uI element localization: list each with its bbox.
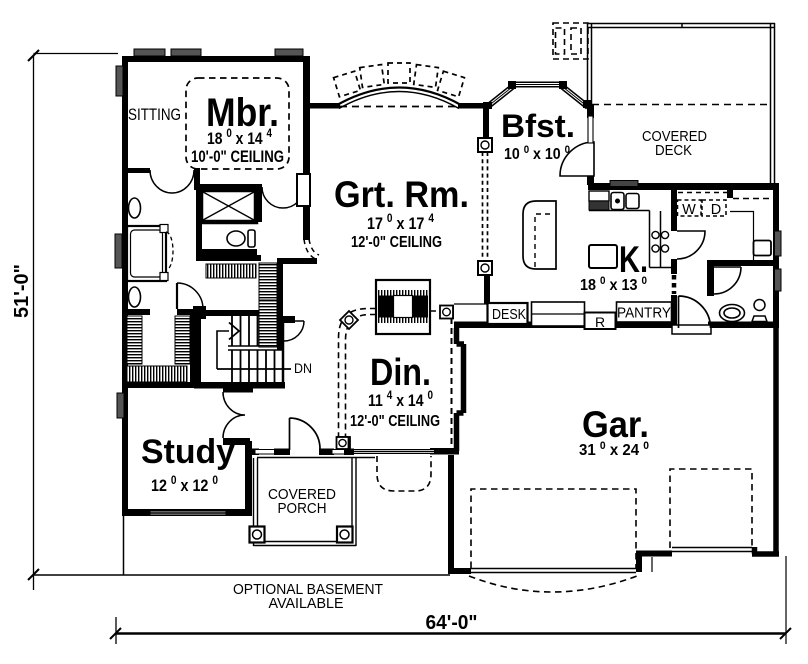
svg-text:31 0 x 24 0: 31 0 x 24 0 — [579, 440, 649, 459]
svg-text:51'-0": 51'-0" — [11, 264, 33, 318]
svg-text:DESK: DESK — [492, 307, 526, 323]
svg-text:D: D — [711, 202, 721, 218]
svg-text:DN: DN — [294, 360, 312, 376]
svg-text:12'-0" CEILING: 12'-0" CEILING — [350, 413, 440, 430]
svg-text:PANTRY: PANTRY — [617, 305, 671, 322]
svg-text:Gar.: Gar. — [582, 404, 649, 445]
svg-text:12'-0" CEILING: 12'-0" CEILING — [351, 234, 442, 251]
svg-text:R: R — [595, 314, 605, 330]
svg-text:SITTING: SITTING — [128, 105, 181, 124]
svg-text:Bfst.: Bfst. — [501, 108, 575, 144]
svg-text:Din.: Din. — [370, 352, 431, 394]
svg-text:10'-0" CEILING: 10'-0" CEILING — [191, 148, 284, 166]
svg-text:PORCH: PORCH — [278, 501, 327, 517]
svg-text:AVAILABLE: AVAILABLE — [269, 596, 344, 612]
svg-text:17 0 x 17 4: 17 0 x 17 4 — [367, 211, 434, 233]
svg-text:Grt. Rm.: Grt. Rm. — [334, 174, 469, 215]
svg-text:W: W — [682, 202, 696, 218]
svg-text:DECK: DECK — [655, 143, 692, 159]
svg-text:12 0 x 12 0: 12 0 x 12 0 — [151, 473, 218, 495]
svg-text:64'-0": 64'-0" — [426, 612, 478, 634]
svg-text:18 0 x 14 4: 18 0 x 14 4 — [207, 126, 272, 148]
svg-text:10 0 x 10 0: 10 0 x 10 0 — [504, 144, 570, 163]
svg-text:K.: K. — [619, 239, 648, 280]
svg-text:11 4 x 14 0: 11 4 x 14 0 — [368, 388, 433, 410]
svg-text:18 0 x 13 0: 18 0 x 13 0 — [580, 275, 647, 294]
svg-text:Study: Study — [141, 433, 235, 471]
